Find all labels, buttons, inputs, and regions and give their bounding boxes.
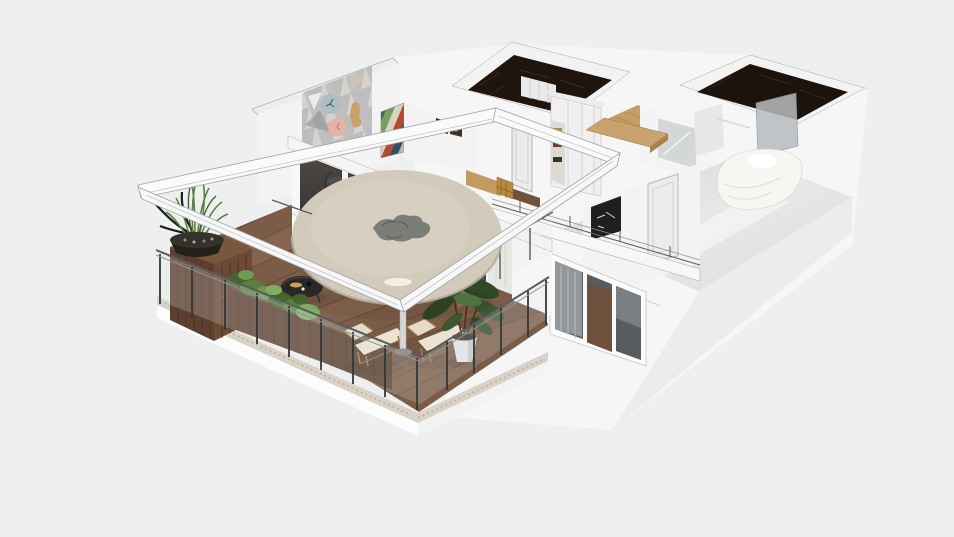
cup [301, 287, 304, 290]
pergola-post-base [394, 349, 412, 356]
window-mullion-1 [583, 272, 587, 344]
bathroom-closet[interactable] [694, 104, 724, 156]
window-mullion-2 [612, 284, 616, 355]
shelf-item-dark [553, 157, 562, 162]
shower-glass[interactable] [756, 93, 798, 156]
floorplan-3d-render [0, 0, 954, 537]
gold-tray [290, 283, 302, 288]
round-table[interactable] [292, 170, 502, 320]
floorplan-render-viewport [0, 0, 954, 537]
window-pane-mid-reflection [586, 282, 612, 352]
pergola-post [400, 311, 406, 352]
kettle [307, 282, 312, 287]
bed-pillow [747, 154, 777, 168]
table-napkin [384, 278, 412, 286]
